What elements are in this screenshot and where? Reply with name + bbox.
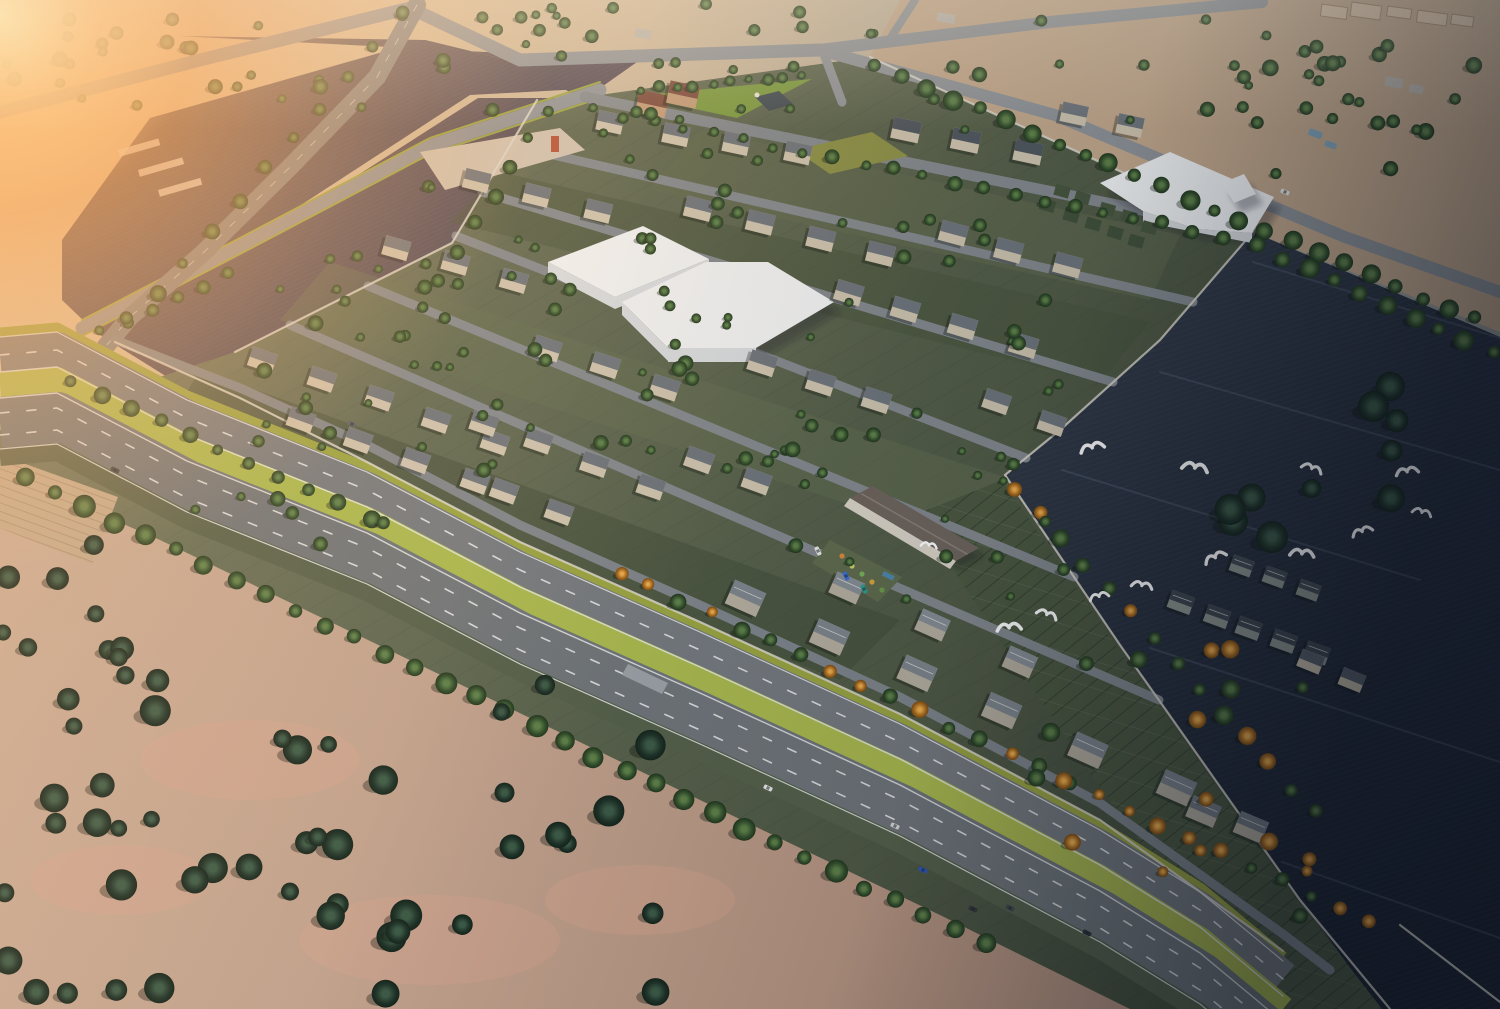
- scene-svg: [0, 0, 1500, 1009]
- lighting-layer: [0, 0, 1500, 1009]
- aerial-masterplan-render: Aerial perspective rendering of a master…: [0, 0, 1500, 1009]
- east-dusk-vignette: [0, 0, 1500, 1009]
